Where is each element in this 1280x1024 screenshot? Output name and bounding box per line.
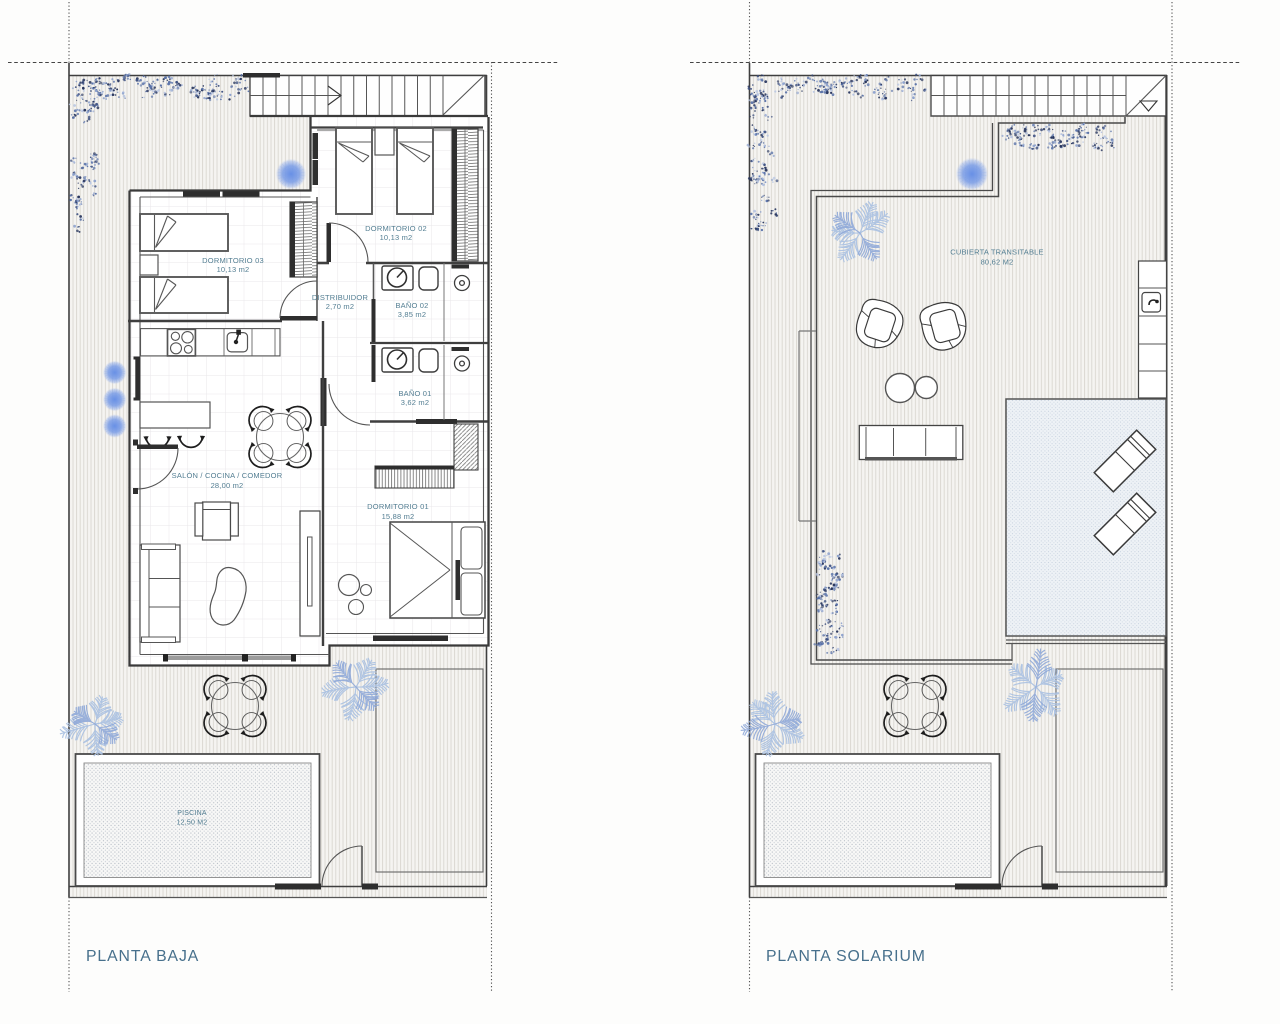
svg-text:28,00 m2: 28,00 m2 [211, 481, 244, 490]
svg-text:PLANTA SOLARIUM: PLANTA SOLARIUM [766, 948, 926, 965]
svg-text:BAÑO 01: BAÑO 01 [398, 389, 431, 398]
svg-text:CUBIERTA TRANSITABLE: CUBIERTA TRANSITABLE [950, 248, 1043, 257]
svg-text:PLANTA BAJA: PLANTA BAJA [86, 948, 199, 965]
svg-text:12,50 M2: 12,50 M2 [177, 820, 208, 827]
svg-text:DISTRIBUIDOR: DISTRIBUIDOR [312, 293, 369, 302]
svg-text:10,13 m2: 10,13 m2 [217, 265, 250, 274]
svg-text:15,88 m2: 15,88 m2 [382, 512, 415, 521]
svg-text:DORMITORIO 02: DORMITORIO 02 [365, 224, 427, 233]
svg-text:3,85 m2: 3,85 m2 [398, 310, 427, 319]
svg-text:BAÑO 02: BAÑO 02 [395, 301, 428, 310]
svg-text:2,70 m2: 2,70 m2 [326, 302, 355, 311]
svg-text:DORMITORIO 01: DORMITORIO 01 [367, 502, 429, 511]
svg-text:DORMITORIO 03: DORMITORIO 03 [202, 256, 264, 265]
svg-text:3,62 m2: 3,62 m2 [401, 398, 430, 407]
svg-text:10,13 m2: 10,13 m2 [380, 233, 413, 242]
svg-text:PISCINA: PISCINA [177, 810, 207, 817]
svg-text:80,62 M2: 80,62 M2 [981, 258, 1014, 267]
svg-text:SALÓN / COCINA / COMEDOR: SALÓN / COCINA / COMEDOR [172, 471, 283, 480]
